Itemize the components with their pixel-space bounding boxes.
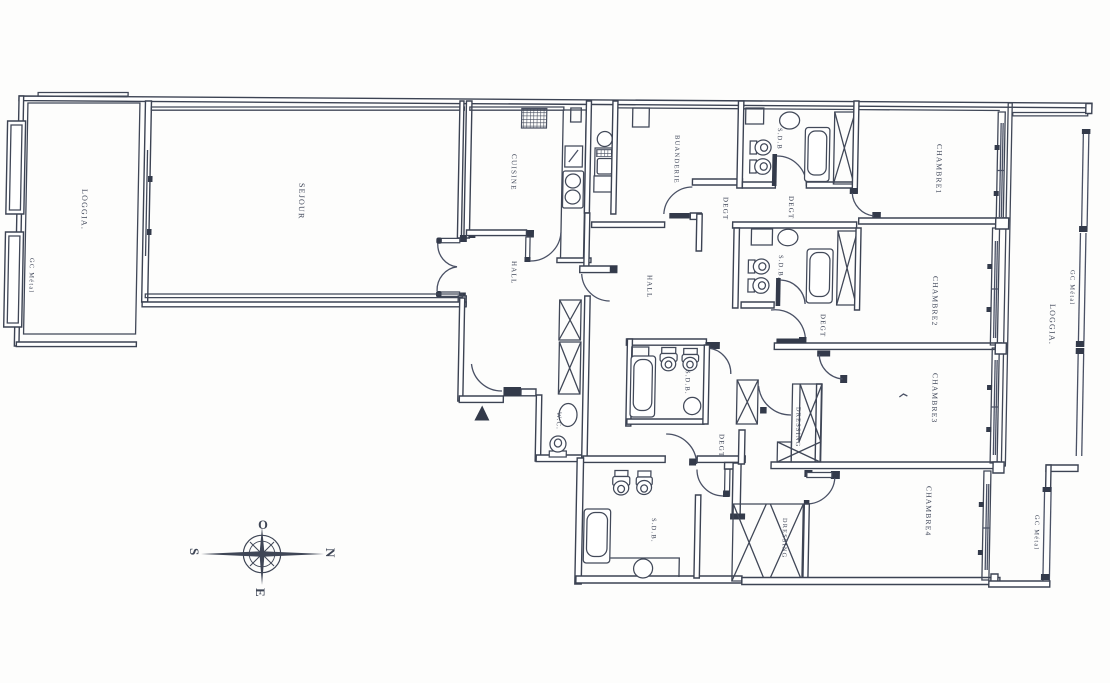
svg-text:S.D.B: S.D.B	[776, 128, 783, 150]
svg-text:DEGT: DEGT	[721, 197, 729, 220]
svg-text:SEJOUR: SEJOUR	[297, 183, 307, 220]
svg-text:CHAMBRE2: CHAMBRE2	[930, 276, 940, 326]
svg-text:CUISINE: CUISINE	[509, 154, 518, 191]
svg-text:DRESSING: DRESSING	[780, 518, 788, 558]
svg-text:DRESSING: DRESSING	[794, 407, 802, 447]
svg-text:LOGGIA.: LOGGIA.	[80, 189, 90, 230]
svg-text:BUANDERIE: BUANDERIE	[672, 135, 680, 184]
svg-text:E: E	[253, 588, 268, 597]
svg-text:W.C.: W.C.	[555, 412, 562, 430]
svg-text:GC Métal: GC Métal	[27, 258, 35, 293]
svg-text:DEGT: DEGT	[818, 314, 826, 337]
svg-text:S.D.B.: S.D.B.	[650, 518, 657, 543]
svg-text:N: N	[323, 548, 338, 558]
svg-text:O: O	[258, 518, 268, 532]
svg-text:GC Métal: GC Métal	[1032, 515, 1040, 550]
svg-text:GC Métal: GC Métal	[1068, 270, 1076, 305]
svg-text:S.D.B.: S.D.B.	[683, 370, 690, 395]
svg-text:CHAMBRE1: CHAMBRE1	[934, 144, 944, 194]
svg-text:HALL: HALL	[509, 261, 517, 284]
svg-text:DEGT: DEGT	[787, 196, 795, 219]
svg-text:HALL: HALL	[645, 275, 653, 298]
svg-text:CHAMBRE3: CHAMBRE3	[930, 373, 940, 423]
svg-text:DEGT: DEGT	[717, 434, 725, 457]
svg-text:LOGGIA.: LOGGIA.	[1047, 304, 1057, 345]
svg-text:S.D.B.: S.D.B.	[777, 255, 784, 280]
svg-text:S: S	[187, 548, 202, 555]
svg-text:CHAMBRE4: CHAMBRE4	[924, 486, 934, 536]
